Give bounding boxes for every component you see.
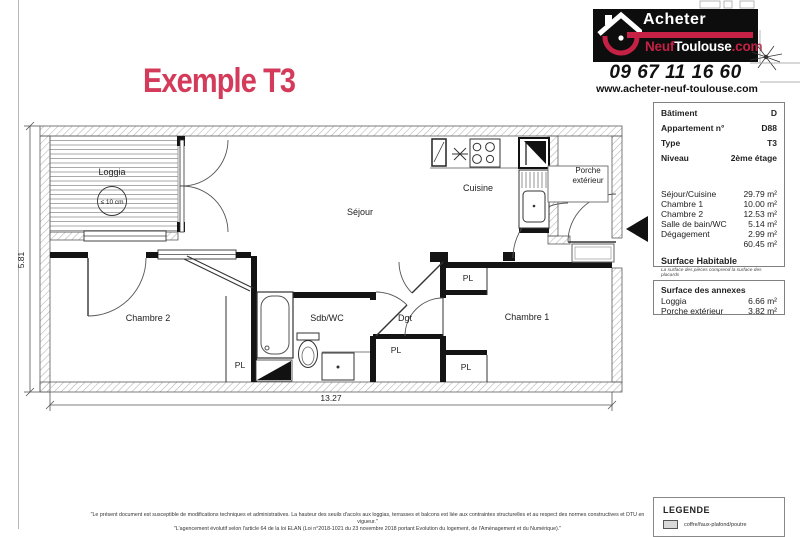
sdb-label: Sdb/WC <box>310 313 344 323</box>
gas-symbol-icon <box>452 148 468 160</box>
floorplan-sheet: { "page": { "accent": "#d43a5a" }, "head… <box>0 0 800 529</box>
page-artifacts <box>700 1 800 82</box>
porche-label-line1: Porche <box>575 166 601 175</box>
pl-label-dgt: PL <box>391 345 402 355</box>
chambre1-label: Chambre 1 <box>505 312 550 322</box>
dimension-width-label: 13.27 <box>320 393 342 403</box>
entrance-arrow-icon <box>626 216 648 242</box>
porche-label-line2: extérieur <box>572 176 603 185</box>
compass-star-icon <box>750 44 782 70</box>
loggia-label: Loggia <box>98 167 125 177</box>
pl-label-chambre1-bottom: PL <box>461 362 472 372</box>
cuisine-label: Cuisine <box>463 183 493 193</box>
dimension-height-label: 5.81 <box>16 251 26 268</box>
loggia-floor <box>50 136 178 232</box>
floor-plan-drawing: Loggia ≤ 10 cm Séjour Cuisine Porche ext… <box>0 0 800 529</box>
chambre2-label: Chambre 2 <box>126 313 171 323</box>
pl-label-chambre1-top: PL <box>463 273 474 283</box>
dgt-label: Dgt <box>398 313 413 323</box>
windows <box>84 231 236 259</box>
sejour-label: Séjour <box>347 207 373 217</box>
bathroom-fixtures <box>256 292 354 381</box>
loggia-note: ≤ 10 cm <box>100 199 123 206</box>
pl-label-chambre2: PL <box>235 360 246 370</box>
